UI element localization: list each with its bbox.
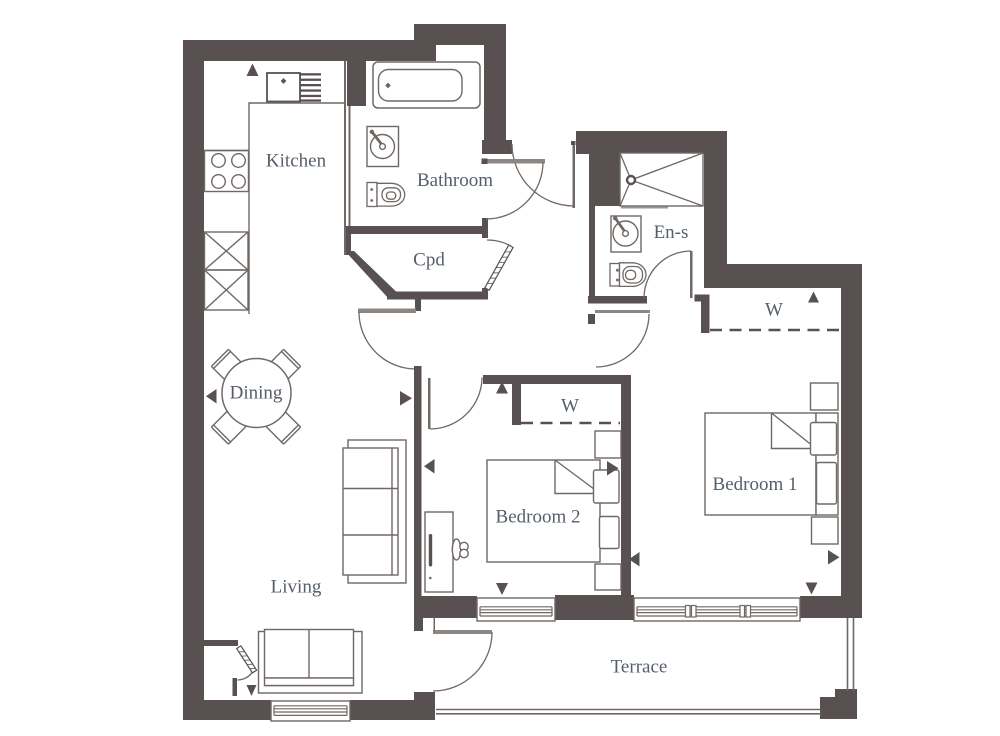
svg-text:Dining: Dining bbox=[230, 383, 283, 404]
svg-text:W: W bbox=[561, 396, 579, 417]
svg-text:Bedroom 1: Bedroom 1 bbox=[713, 474, 798, 495]
svg-text:Living: Living bbox=[271, 577, 322, 598]
svg-text:Cpd: Cpd bbox=[413, 250, 445, 271]
svg-text:Terrace: Terrace bbox=[611, 657, 668, 678]
svg-text:En-s: En-s bbox=[654, 222, 689, 243]
svg-text:W: W bbox=[765, 300, 783, 321]
svg-text:Kitchen: Kitchen bbox=[266, 151, 327, 172]
svg-text:Bedroom 2: Bedroom 2 bbox=[496, 507, 581, 528]
svg-text:Bathroom: Bathroom bbox=[417, 170, 493, 191]
